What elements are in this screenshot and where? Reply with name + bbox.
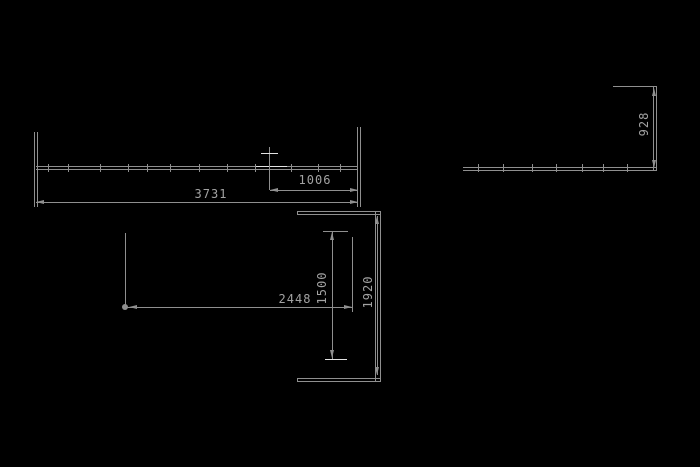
arrowhead-down [652,160,656,168]
beam-left-cap-line [37,132,38,207]
technical-drawing-canvas: 1006 3731 928 [0,0,700,467]
top-extension-line [613,86,657,87]
joint-tick [291,164,292,172]
joint-tick [128,164,129,172]
opening-right-line [380,211,381,382]
arrowhead-right [350,200,358,204]
extension-line [653,86,654,170]
arrowhead-right [350,188,358,192]
beam-right-cap-line [360,127,361,207]
joint-tick [227,164,228,172]
joint-tick [556,164,557,172]
arrowhead-up [330,232,334,240]
joint-tick [627,164,628,172]
beam-bottom-line [36,169,358,170]
arrowhead-left [36,200,44,204]
arrowhead-down [375,367,379,375]
opening-bottom-line [297,378,381,379]
opening-right-line [375,211,376,382]
dim-label-1006: 1006 [299,174,332,186]
joint-tick [68,164,69,172]
opening-bottom-line [297,381,381,382]
joint-tick [100,164,101,172]
beam-left-cap-line [34,132,35,207]
opening-top-line [297,214,381,215]
origin-dot [122,304,128,310]
arrowhead-left [129,305,137,309]
dimension-line [377,216,378,375]
arrowhead-left [270,188,278,192]
arrowhead-down [330,350,334,358]
arrowhead-up [375,216,379,224]
joint-tick [340,164,341,172]
opening-bottom-left-cap [297,378,298,382]
joint-tick [255,164,256,172]
joint-tick [199,164,200,172]
arrowhead-right [344,305,352,309]
joint-tick [147,164,148,172]
cross-tick [261,153,278,154]
joint-tick [170,164,171,172]
dimension-line [656,86,657,170]
beam-top-line [36,166,358,167]
joint-tick [532,164,533,172]
dim-label-1920: 1920 [362,276,374,309]
opening-top-left-cap [297,211,298,215]
dim-label-2448: 2448 [279,293,312,305]
dimension-line [36,202,358,203]
left-extension-line [125,233,126,307]
joint-tick [603,164,604,172]
dimension-line [270,190,358,191]
joint-tick [503,164,504,172]
joint-tick [318,164,319,172]
arrowhead-up [652,88,656,96]
dim-label-3731: 3731 [195,188,228,200]
joint-tick [478,164,479,172]
bottom-tick [325,359,347,360]
dim-label-928: 928 [638,112,650,137]
opening-top-line [297,211,381,212]
dim-label-1500: 1500 [316,272,328,305]
beam-right-cap-line [357,127,358,207]
beam-highlight-segment [255,166,287,167]
joint-tick [582,164,583,172]
right-extension-line [352,237,353,312]
dimension-line [332,231,333,359]
top-tick [323,231,348,232]
dimension-line [125,307,352,308]
joint-tick [48,164,49,172]
